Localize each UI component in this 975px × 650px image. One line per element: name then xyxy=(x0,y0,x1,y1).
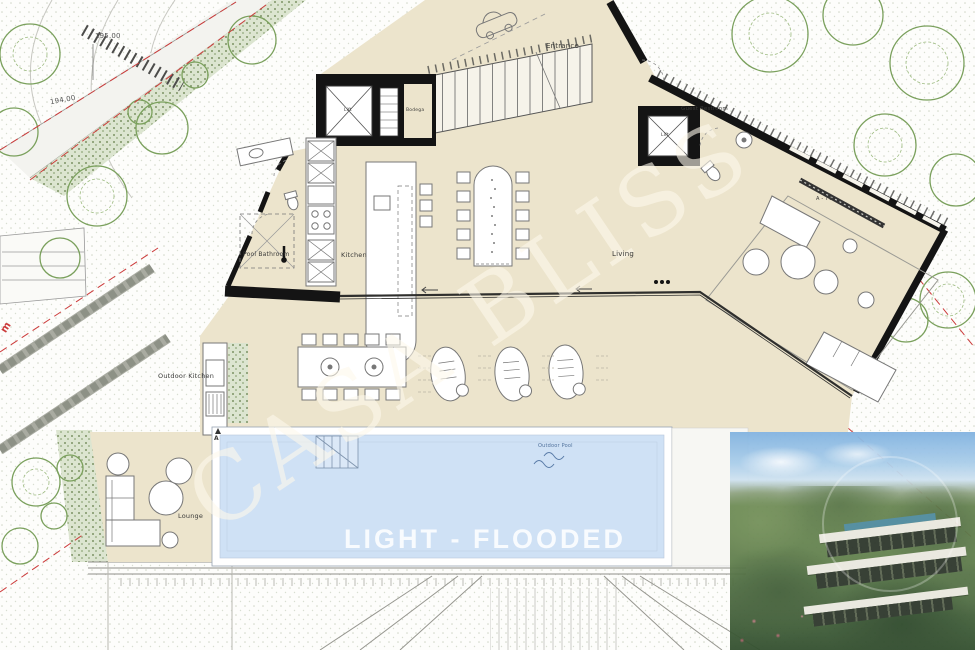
label-pool-bathroom: Pool Bathroom xyxy=(243,251,289,258)
side-table-icon xyxy=(843,239,857,253)
step-dots xyxy=(654,280,670,284)
villa-photo-inset xyxy=(730,432,975,650)
label-guest-restroom: Guest Restroom xyxy=(681,106,728,112)
stamp-circle xyxy=(822,456,958,592)
stool-icon xyxy=(420,184,432,195)
floor-plan-sheet: CASA BLISS Entrance Guest Restroom Pool … xyxy=(0,0,975,650)
label-entrance: Entrance xyxy=(546,42,579,50)
outdoor-dining-set xyxy=(298,334,406,400)
label-lounge: Lounge xyxy=(178,512,203,520)
label-tv-wall: A - TV xyxy=(816,196,832,202)
hedge xyxy=(228,343,248,423)
dining-set xyxy=(457,166,529,266)
label-lift: Lift xyxy=(661,133,669,138)
tagline: LIGHT - FLOODED xyxy=(330,524,640,555)
coffee-table-icon xyxy=(814,270,838,294)
pouf-icon xyxy=(162,532,178,548)
outdoor-kitchen-fixtures xyxy=(203,343,248,435)
label-living: Living xyxy=(612,250,634,258)
pouf-icon xyxy=(107,453,129,475)
pouf-icon xyxy=(858,292,874,308)
armchair-icon xyxy=(743,249,769,275)
label-lift: Lift xyxy=(344,108,352,113)
stove-icon xyxy=(308,206,334,234)
pouf-icon xyxy=(166,458,192,484)
label-bodega: Bodega xyxy=(406,108,424,113)
label-kitchen: Kitchen xyxy=(341,251,367,259)
pool-steps xyxy=(316,436,358,468)
garden-steps xyxy=(0,228,86,304)
label-outdoor-kitchen: Outdoor Kitchen xyxy=(158,372,214,380)
flower-bed xyxy=(730,602,850,650)
section-marker-label: A xyxy=(214,435,219,442)
elevation-upper: 195.00 xyxy=(95,32,121,40)
drain-icon xyxy=(281,257,287,263)
stool-icon xyxy=(420,200,432,211)
guest-shaft xyxy=(638,106,700,166)
stool-icon xyxy=(420,216,432,227)
label-outdoor-pool: Outdoor Pool xyxy=(538,443,573,449)
pouf-icon xyxy=(149,481,183,515)
sofa-icon xyxy=(106,520,160,546)
coffee-table-icon xyxy=(781,245,815,279)
